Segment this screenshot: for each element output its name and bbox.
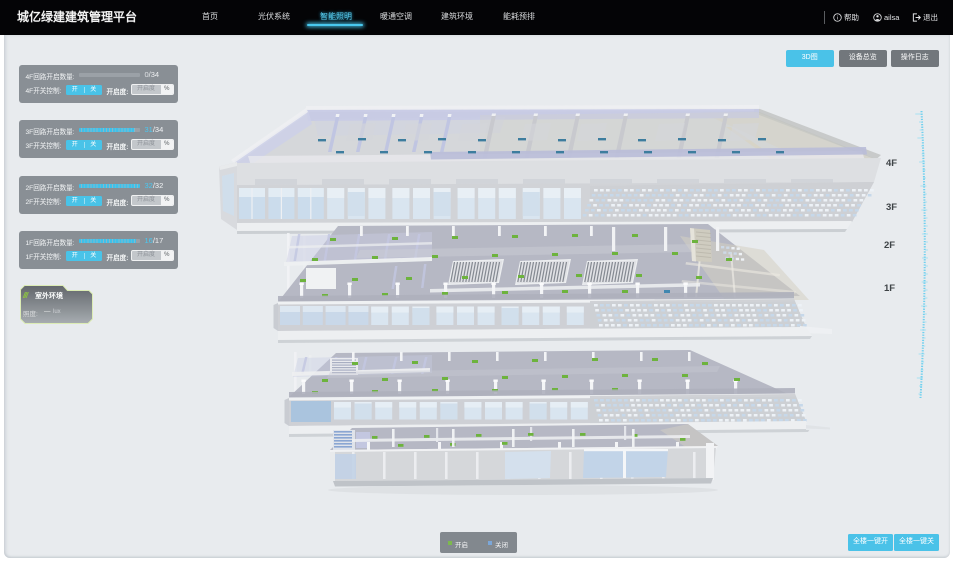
svg-text:2F: 2F xyxy=(884,240,895,251)
svg-text:3F: 3F xyxy=(886,202,897,213)
svg-text:4F: 4F xyxy=(886,158,897,169)
svg-text:1F: 1F xyxy=(884,283,895,294)
